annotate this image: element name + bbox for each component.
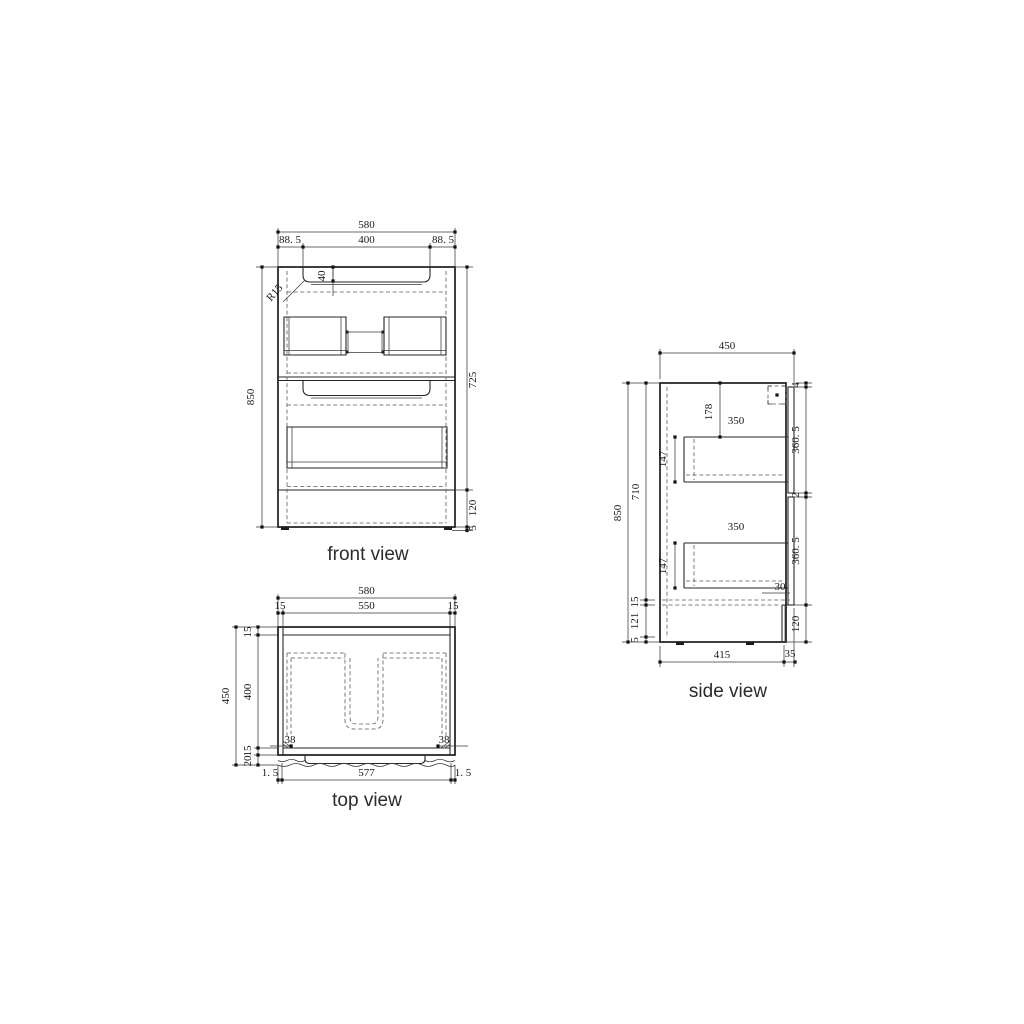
top-dim-right-wall: 15 <box>448 600 460 612</box>
top-dim-back-wall: 15 <box>242 626 254 638</box>
front-view-label: front view <box>327 544 409 565</box>
front-right-foot <box>444 527 452 530</box>
side-dim-basin-drop: 178 <box>703 403 715 420</box>
top-dim-front-right-gap: 1. 5 <box>455 767 472 779</box>
side-view: 450 178 350 147 350 147 850 710 15 121 5… <box>612 340 812 702</box>
top-dim-left-wall: 15 <box>275 600 287 612</box>
front-dim-handle-depth: 40 <box>316 270 328 282</box>
top-dim-front-overhang: 20 <box>242 755 254 767</box>
top-dim-front-panel-width: 577 <box>358 767 375 779</box>
side-dim-front-overhang: 30 <box>775 581 787 593</box>
side-view-label: side view <box>689 681 767 702</box>
front-dim-right-margin: 88. 5 <box>432 234 455 246</box>
side-lower-drawer-box <box>684 543 788 588</box>
front-dim-overall-width: 580 <box>358 219 375 231</box>
side-dim-overall-height: 850 <box>612 504 624 521</box>
side-wall-bracket <box>768 386 786 404</box>
side-dim-base-gap: 5 <box>629 637 641 643</box>
side-dim-kick-height-right: 120 <box>790 615 802 632</box>
side-dim-upper-drawer-height: 147 <box>657 450 669 467</box>
vanity-technical-drawing: 580 88. 5 400 88. 5 40 R15 850 725 120 5… <box>0 0 1024 1024</box>
drawing-sheet: 580 88. 5 400 88. 5 40 R15 850 725 120 5… <box>0 0 1024 1024</box>
side-back-foot <box>676 642 684 645</box>
top-dim-inner-depth: 400 <box>242 683 254 700</box>
top-dim-right-bracket: 38 <box>439 734 451 746</box>
front-upper-drawer-box <box>284 317 446 355</box>
side-dim-carcass-height: 710 <box>630 483 642 500</box>
front-dim-handle-width: 400 <box>358 234 375 246</box>
side-cabinet-outline <box>660 383 786 642</box>
top-dim-left-bracket: 38 <box>285 734 297 746</box>
top-dim-front-rail: 15 <box>242 745 254 757</box>
front-lower-handle-recess <box>303 381 430 396</box>
top-view-label: top view <box>332 790 402 811</box>
front-dim-left-margin: 88. 5 <box>279 234 302 246</box>
side-front-foot <box>746 642 754 645</box>
side-dim-door-gap: 2 <box>790 492 802 498</box>
front-view: 580 88. 5 400 88. 5 40 R15 850 725 120 5… <box>245 219 479 565</box>
side-dim-overall-depth: 450 <box>719 340 736 352</box>
side-dim-upper-drawer-depth: 350 <box>728 415 745 427</box>
side-dim-kick-height-left: 121 <box>629 613 641 630</box>
side-dim-lower-front-height: 360. 5 <box>790 537 802 565</box>
side-dim-top-gap: 4 <box>790 382 802 388</box>
front-left-foot <box>281 527 289 530</box>
front-view-geometry <box>278 267 455 530</box>
front-dim-body-height: 725 <box>467 371 479 388</box>
front-lower-drawer-box <box>287 427 447 468</box>
top-basin-outline <box>287 653 446 737</box>
top-view: 580 15 550 15 450 15 400 15 20 38 38 1. … <box>220 585 472 811</box>
front-sink-connector <box>346 332 384 353</box>
top-dim-inner-width: 550 <box>358 600 375 612</box>
top-dim-overall-depth: 450 <box>220 687 232 704</box>
side-dim-lower-drawer-depth: 350 <box>728 521 745 533</box>
side-dim-base-depth: 415 <box>714 649 731 661</box>
front-view-dimensions: 580 88. 5 400 88. 5 40 R15 850 725 120 5 <box>245 219 479 532</box>
front-dim-kick-height: 120 <box>467 499 479 516</box>
front-dim-corner-radius: R15 <box>264 282 286 304</box>
front-dim-base-gap: 5 <box>467 525 479 531</box>
side-dim-bottom-clearance: 15 <box>629 596 641 608</box>
side-dim-upper-front-height: 360. 5 <box>790 426 802 454</box>
top-dim-overall-width: 580 <box>358 585 375 597</box>
top-dim-front-left-gap: 1. 5 <box>262 767 279 779</box>
side-upper-drawer-box <box>684 437 788 482</box>
side-dim-lower-drawer-height: 147 <box>657 557 669 574</box>
front-cabinet-outline <box>278 267 455 527</box>
side-dim-kick-setback: 35 <box>785 648 797 660</box>
front-dim-overall-height: 850 <box>245 388 257 405</box>
top-view-geometry <box>278 627 455 767</box>
top-front-handle-recess <box>305 755 425 764</box>
top-cabinet-outline <box>278 627 455 755</box>
